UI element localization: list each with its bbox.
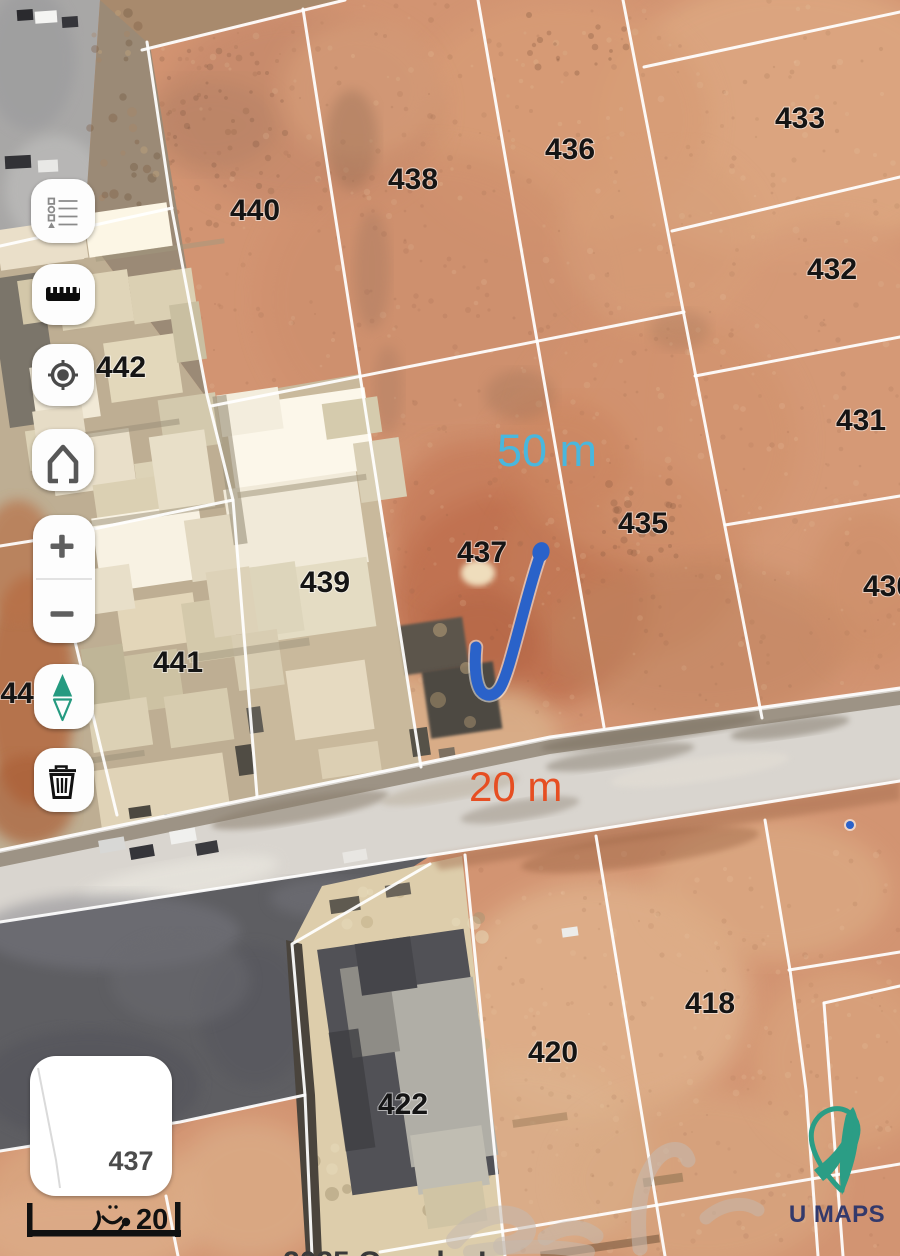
svg-text:440: 440 [230, 194, 280, 227]
svg-text:437: 437 [457, 536, 507, 569]
svg-text:422: 422 [378, 1088, 428, 1121]
svg-text:442: 442 [96, 351, 146, 384]
svg-text:20 m: 20 m [469, 763, 562, 810]
svg-text:441: 441 [153, 646, 203, 679]
svg-text:433: 433 [775, 102, 825, 135]
svg-text:U MAPS: U MAPS [789, 1201, 885, 1228]
svg-text:430: 430 [863, 570, 900, 603]
svg-text:2025 Google, Imagery: 2025 Google, Imagery [283, 1246, 593, 1256]
svg-text:437: 437 [108, 1146, 153, 1176]
svg-text:20: 20 [136, 1204, 168, 1236]
svg-text:435: 435 [618, 507, 668, 540]
svg-text:420: 420 [528, 1036, 578, 1069]
svg-text:432: 432 [807, 253, 857, 286]
svg-text:436: 436 [545, 133, 595, 166]
svg-text:438: 438 [388, 163, 438, 196]
svg-text:418: 418 [685, 987, 735, 1020]
svg-text:44: 44 [0, 677, 34, 710]
svg-text:50 m: 50 m [497, 425, 597, 476]
svg-text:439: 439 [300, 566, 350, 599]
svg-text:431: 431 [836, 404, 886, 437]
